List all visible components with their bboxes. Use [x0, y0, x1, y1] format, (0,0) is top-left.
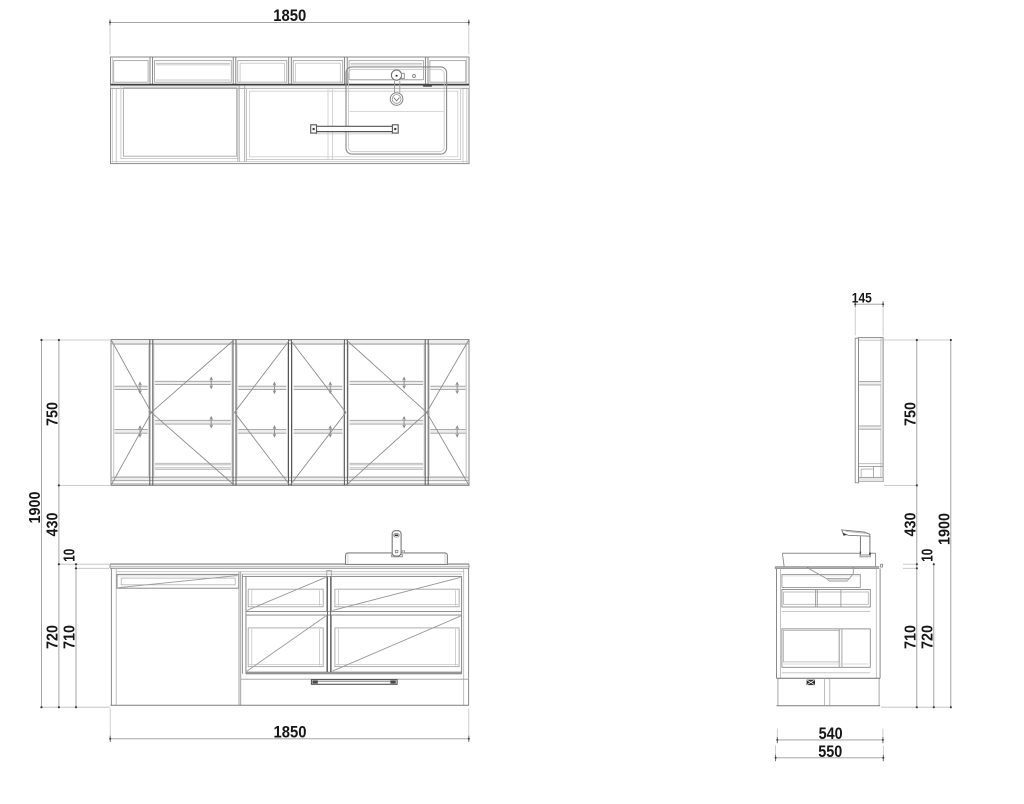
svg-text:550: 550 [818, 742, 842, 761]
svg-text:710: 710 [62, 625, 79, 649]
svg-text:1900: 1900 [27, 491, 44, 523]
svg-text:10: 10 [62, 549, 79, 562]
svg-text:430: 430 [902, 512, 919, 536]
svg-text:145: 145 [852, 289, 872, 305]
svg-text:1900: 1900 [936, 513, 953, 545]
svg-text:430: 430 [44, 512, 61, 536]
svg-text:10: 10 [919, 549, 936, 562]
svg-text:750: 750 [902, 402, 919, 426]
svg-text:750: 750 [44, 402, 61, 426]
svg-text:1850: 1850 [273, 6, 306, 25]
svg-text:1850: 1850 [274, 722, 307, 741]
svg-text:720: 720 [44, 625, 61, 649]
svg-text:720: 720 [919, 625, 936, 649]
svg-text:540: 540 [819, 724, 843, 743]
svg-text:710: 710 [902, 625, 919, 649]
